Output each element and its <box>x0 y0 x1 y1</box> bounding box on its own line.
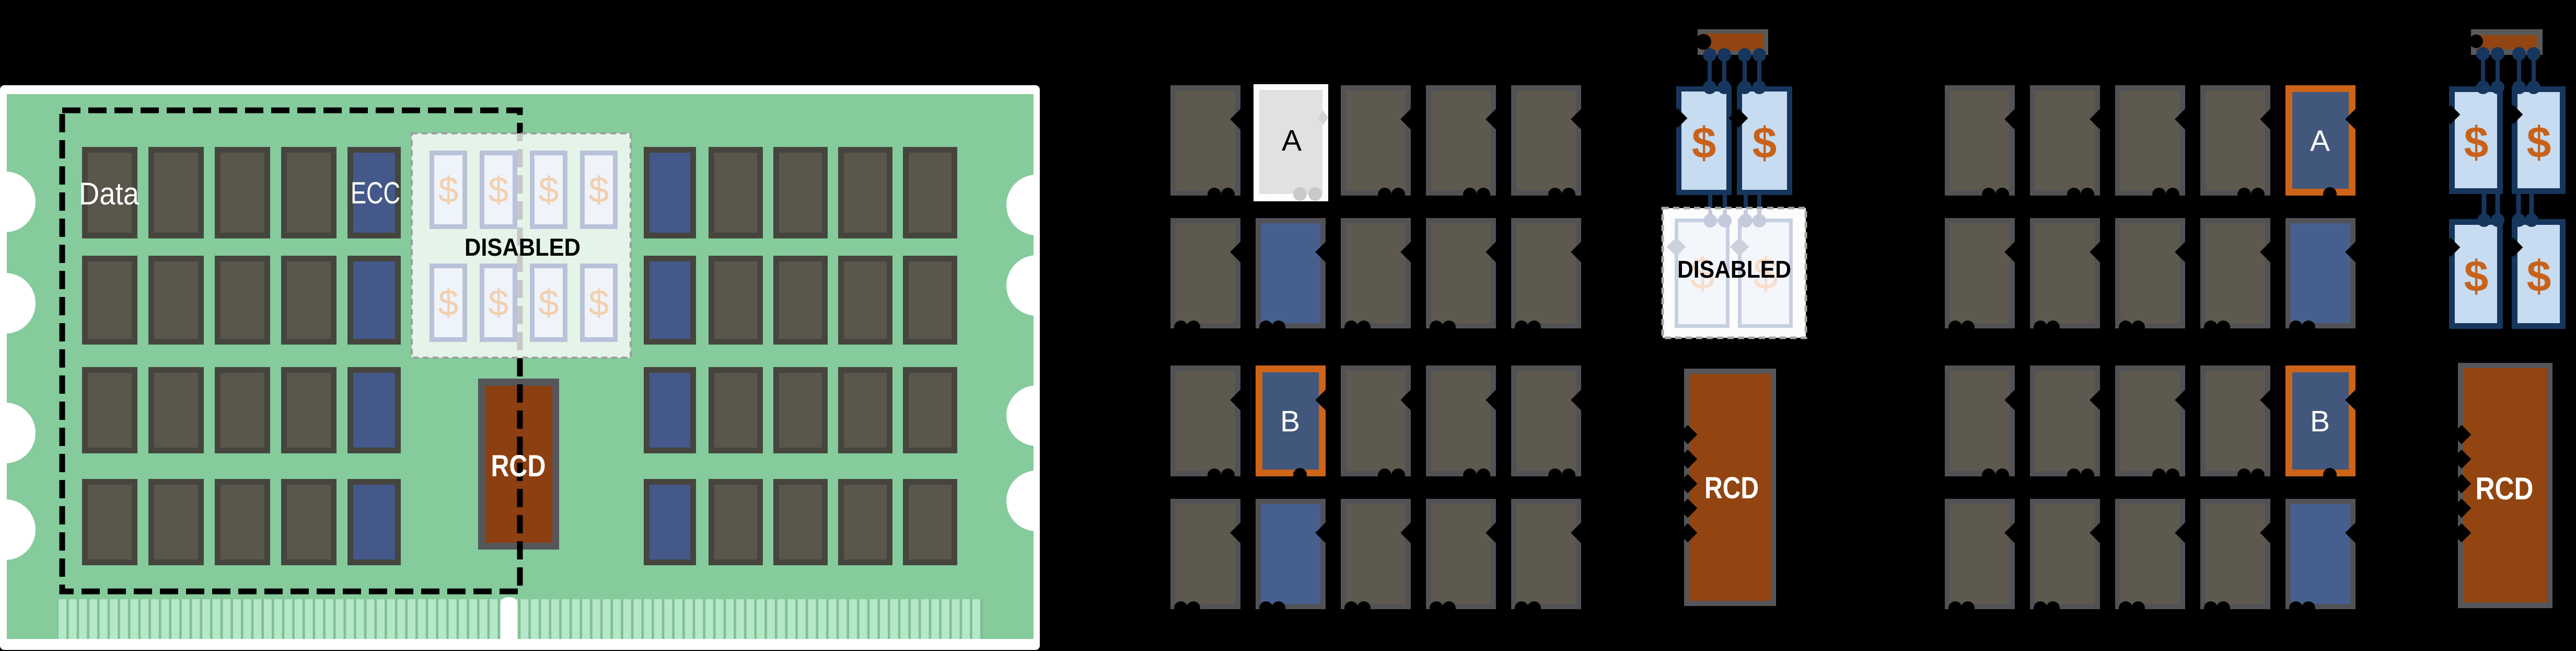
svg-text:A: A <box>2310 124 2330 158</box>
svg-text:$: $ <box>539 282 559 323</box>
svg-text:$: $ <box>2464 118 2489 167</box>
svg-text:$: $ <box>589 282 609 323</box>
svg-text:DISABLED: DISABLED <box>1677 256 1791 283</box>
svg-text:A: A <box>1282 124 1302 157</box>
svg-text:$: $ <box>1692 118 1716 167</box>
svg-text:$: $ <box>2464 252 2489 301</box>
svg-text:$: $ <box>2527 252 2551 301</box>
svg-text:$: $ <box>489 169 509 210</box>
svg-text:$: $ <box>438 282 459 323</box>
svg-text:DISABLED: DISABLED <box>465 233 581 261</box>
svg-text:$: $ <box>539 169 559 210</box>
svg-text:$: $ <box>589 169 609 210</box>
svg-text:RCD: RCD <box>491 449 546 483</box>
svg-text:B: B <box>2310 405 2330 438</box>
svg-text:RCD: RCD <box>2476 471 2534 506</box>
svg-text:RCD: RCD <box>1704 471 1759 505</box>
svg-text:$: $ <box>438 169 459 210</box>
svg-text:$: $ <box>2527 118 2551 167</box>
svg-text:B: B <box>1280 405 1300 438</box>
svg-text:$: $ <box>1753 118 1777 167</box>
svg-text:Data: Data <box>79 176 140 211</box>
svg-text:$: $ <box>489 282 509 323</box>
svg-text:ECC: ECC <box>351 176 400 210</box>
